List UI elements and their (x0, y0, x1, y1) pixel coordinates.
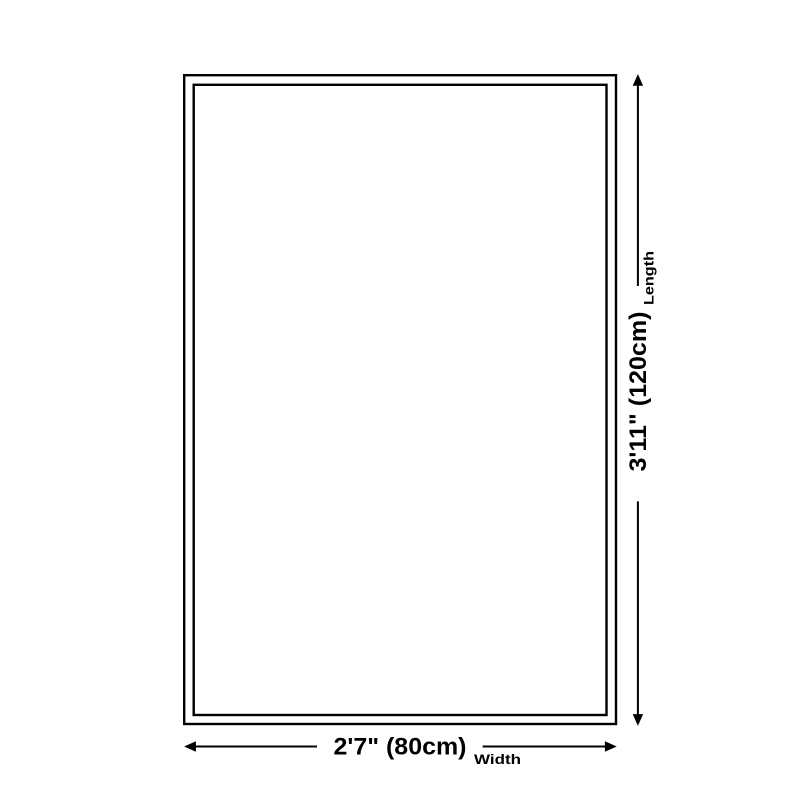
svg-text:Length: Length (641, 251, 657, 305)
svg-text:2'7" (80cm): 2'7" (80cm) (334, 734, 467, 761)
svg-text:Width: Width (474, 751, 521, 767)
svg-text:3'11" (120cm): 3'11" (120cm) (625, 312, 652, 472)
